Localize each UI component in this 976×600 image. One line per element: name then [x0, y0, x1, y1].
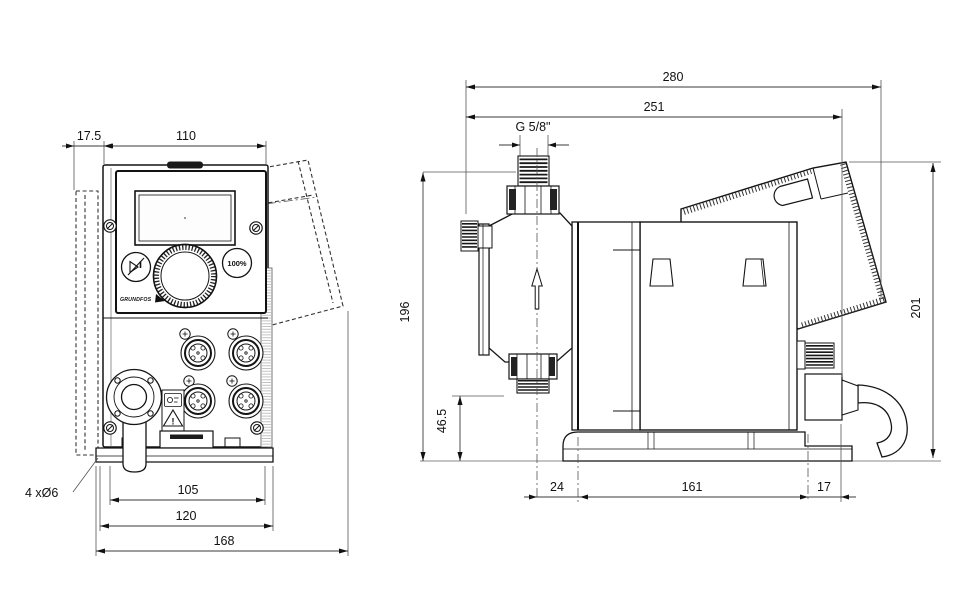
technical-drawing-page: 100% GRUNDFOS — [0, 0, 976, 600]
screw-icon — [250, 222, 262, 234]
dim-label: G 5/8" — [515, 120, 550, 134]
screw-icon — [104, 220, 116, 232]
mounting-plate-phantom — [76, 191, 98, 455]
cable-gland-rear — [842, 380, 858, 415]
dim-base-width-120: 120 — [100, 466, 273, 531]
dim-label: 196 — [398, 302, 412, 323]
dim-label: 46.5 — [435, 409, 449, 433]
dim-label: 4 xØ6 — [25, 486, 58, 500]
dim-label: 280 — [663, 70, 684, 84]
dosing-head — [479, 213, 572, 362]
m12-connector[interactable] — [229, 384, 263, 418]
dim-label: 17.5 — [77, 129, 101, 143]
capacity-100-button[interactable]: 100% — [223, 249, 252, 278]
dim-suction-height-46-5: 46.5 — [435, 396, 504, 461]
dim-body-width-110: 110 — [104, 129, 266, 164]
dim-label: 110 — [176, 129, 196, 143]
screw-icon — [251, 422, 263, 434]
display — [135, 191, 235, 245]
terminal-box — [805, 374, 842, 420]
front-view: 100% GRUNDFOS — [25, 129, 348, 556]
suction-valve — [509, 354, 557, 393]
screw-icon — [104, 422, 116, 434]
start-stop-button[interactable] — [122, 253, 151, 282]
base-plate-side — [563, 432, 852, 461]
m12-connector[interactable] — [181, 336, 215, 370]
side-view: 280 251 G 5/8" 196 46.5 — [398, 70, 941, 502]
top-clip — [167, 162, 203, 169]
dimensional-drawing: 100% GRUNDFOS — [0, 0, 976, 600]
warning-label: ! — [162, 390, 184, 431]
warning-exclamation: ! — [172, 417, 175, 427]
dim-label: 168 — [214, 534, 235, 548]
adapter-flange — [572, 222, 640, 430]
cable-gland-front — [107, 370, 162, 425]
dim-mount-holes: 4 xØ6 — [25, 458, 98, 500]
dim-label-head-offset: 24 — [550, 480, 564, 494]
m12-connector[interactable] — [229, 336, 263, 370]
dim-label: 251 — [644, 100, 665, 114]
dim-label-rear-offset: 17 — [817, 480, 831, 494]
rear-connections — [797, 341, 907, 457]
discharge-valve — [507, 156, 559, 214]
dim-label-base-length: 161 — [682, 480, 703, 494]
motor-housing — [640, 222, 797, 430]
brand-wordmark: GRUNDFOS — [120, 297, 152, 303]
capacity-button-label: 100% — [227, 259, 247, 268]
clamp-block — [160, 431, 213, 448]
dim-label: 120 — [176, 509, 197, 523]
dim-overall-height-201: 201 — [909, 163, 933, 458]
m12-connector[interactable] — [181, 384, 215, 418]
rear-plug-connector[interactable] — [805, 343, 834, 368]
dim-label: 201 — [909, 298, 923, 319]
control-knob[interactable] — [154, 245, 217, 308]
vent-valve — [461, 221, 492, 251]
dim-label: 105 — [178, 483, 199, 497]
control-panel: 100% GRUNDFOS — [116, 171, 266, 313]
dim-connection-thread: G 5/8" — [499, 120, 569, 157]
power-cable — [858, 385, 907, 457]
grip-recess — [650, 259, 673, 286]
